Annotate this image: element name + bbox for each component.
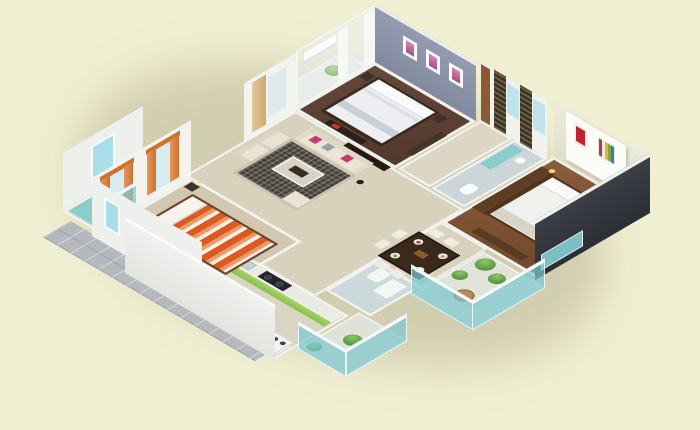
blue-pane [507,83,519,120]
dark-wardrobe-strip [520,85,532,150]
orange-curtain [170,135,179,182]
white-curtain [338,24,348,84]
wall-art-pink [426,49,440,75]
window [149,136,177,194]
window-pane [268,67,286,118]
tan-curtain [252,75,266,133]
floor-plan-render [0,0,700,430]
wall-art-pink [403,35,417,61]
white-curtain [364,9,375,69]
air-conditioner [304,34,336,64]
entry-door [481,64,490,125]
orange-curtain [147,148,156,195]
table-decor [288,165,309,177]
blue-pane [533,98,545,135]
wall-art-pink [449,62,463,88]
blue-window [104,197,120,236]
dark-wardrobe-strip [494,70,506,135]
